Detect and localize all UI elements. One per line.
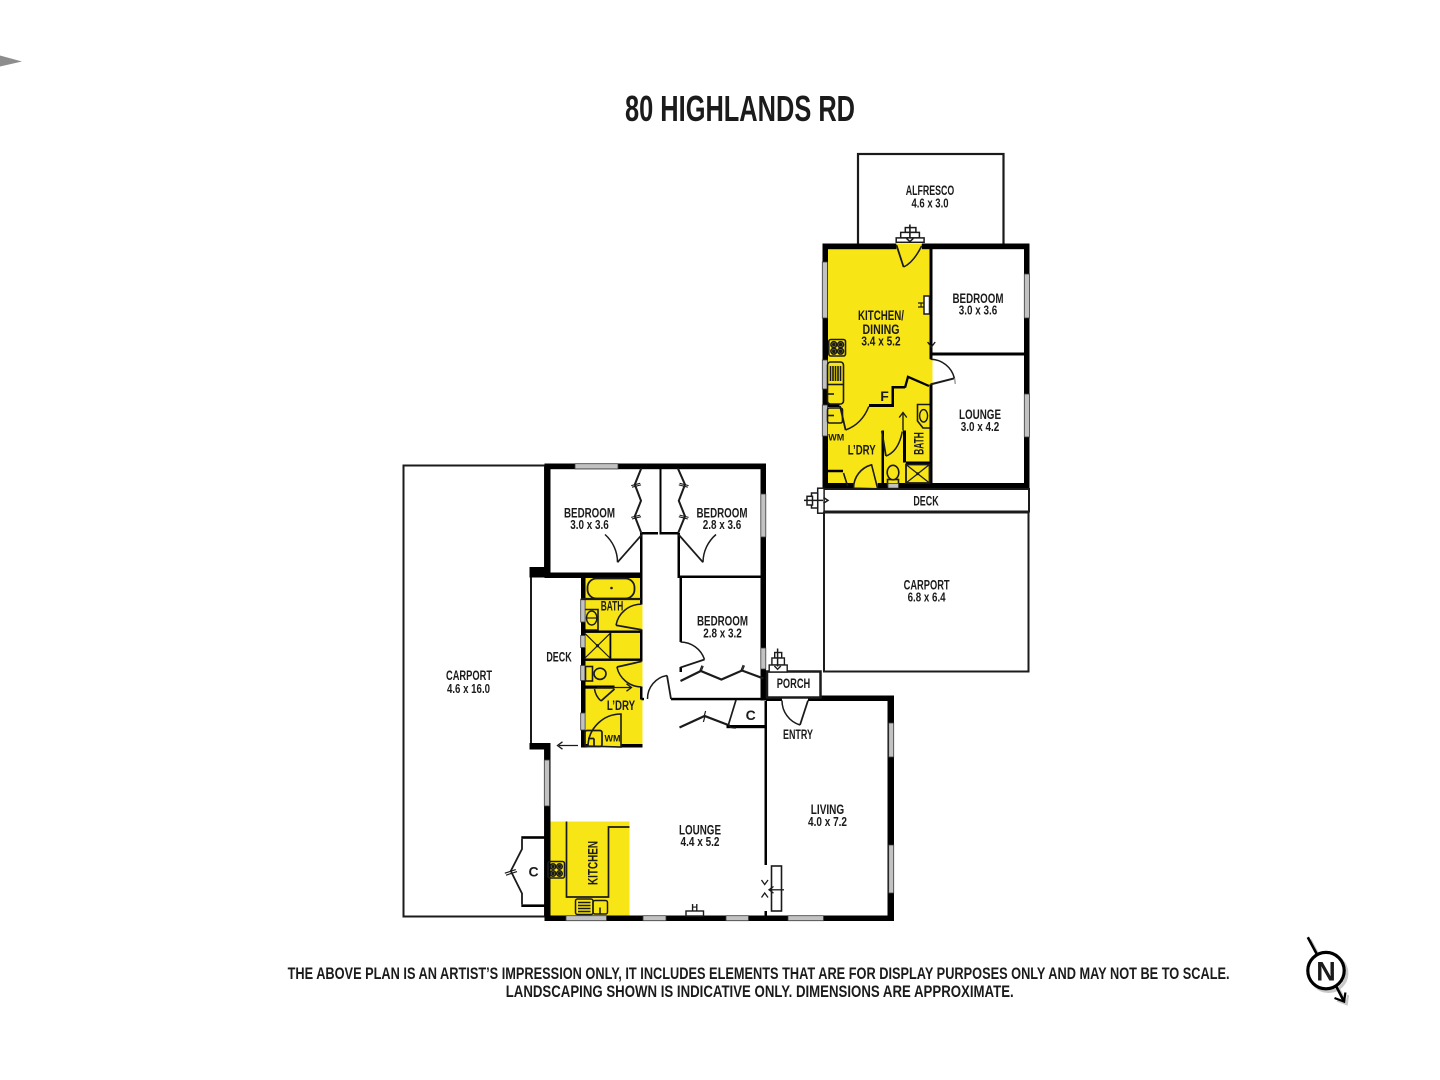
svg-text:C: C <box>528 864 538 880</box>
svg-text:WM: WM <box>605 734 621 745</box>
svg-text:THE ABOVE PLAN IS AN ARTIST’S: THE ABOVE PLAN IS AN ARTIST’S IMPRESSION… <box>288 964 1230 983</box>
svg-text:N: N <box>1316 956 1336 986</box>
svg-text:PORCH: PORCH <box>777 676 811 691</box>
svg-text:F: F <box>880 388 889 404</box>
svg-text:3.0 x 3.6: 3.0 x 3.6 <box>570 517 609 532</box>
svg-text:6.8 x 6.4: 6.8 x 6.4 <box>908 589 947 604</box>
svg-text:4.0 x 7.2: 4.0 x 7.2 <box>808 814 847 829</box>
svg-text:BATH: BATH <box>911 432 926 455</box>
svg-text:3.0 x 3.6: 3.0 x 3.6 <box>959 303 998 318</box>
svg-text:L’DRY: L’DRY <box>848 442 876 457</box>
svg-text:L’DRY: L’DRY <box>607 698 635 713</box>
svg-text:WM: WM <box>828 433 844 444</box>
svg-text:C: C <box>746 707 756 723</box>
svg-text:KITCHEN/: KITCHEN/ <box>858 308 904 323</box>
svg-text:4.4 x 5.2: 4.4 x 5.2 <box>681 834 720 849</box>
svg-text:ENTRY: ENTRY <box>783 727 813 742</box>
svg-text:KITCHEN: KITCHEN <box>586 841 601 885</box>
svg-text:DECK: DECK <box>913 493 938 508</box>
svg-text:4.6 x 3.0: 4.6 x 3.0 <box>912 196 949 211</box>
svg-text:80 HIGHLANDS RD: 80 HIGHLANDS RD <box>625 88 855 129</box>
svg-text:3.4 x 5.2: 3.4 x 5.2 <box>861 333 900 348</box>
svg-text:BATH: BATH <box>601 599 624 614</box>
svg-text:2.8 x 3.6: 2.8 x 3.6 <box>703 517 742 532</box>
svg-text:H: H <box>917 302 927 309</box>
svg-text:3.0 x 4.2: 3.0 x 4.2 <box>961 419 1000 434</box>
svg-text:LANDSCAPING SHOWN IS INDICATIV: LANDSCAPING SHOWN IS INDICATIVE ONLY. DI… <box>506 982 1014 1001</box>
svg-text:DECK: DECK <box>546 650 571 665</box>
svg-text:H: H <box>691 902 698 913</box>
svg-text:2.8 x 3.2: 2.8 x 3.2 <box>703 625 742 640</box>
svg-text:4.6 x 16.0: 4.6 x 16.0 <box>447 681 490 696</box>
